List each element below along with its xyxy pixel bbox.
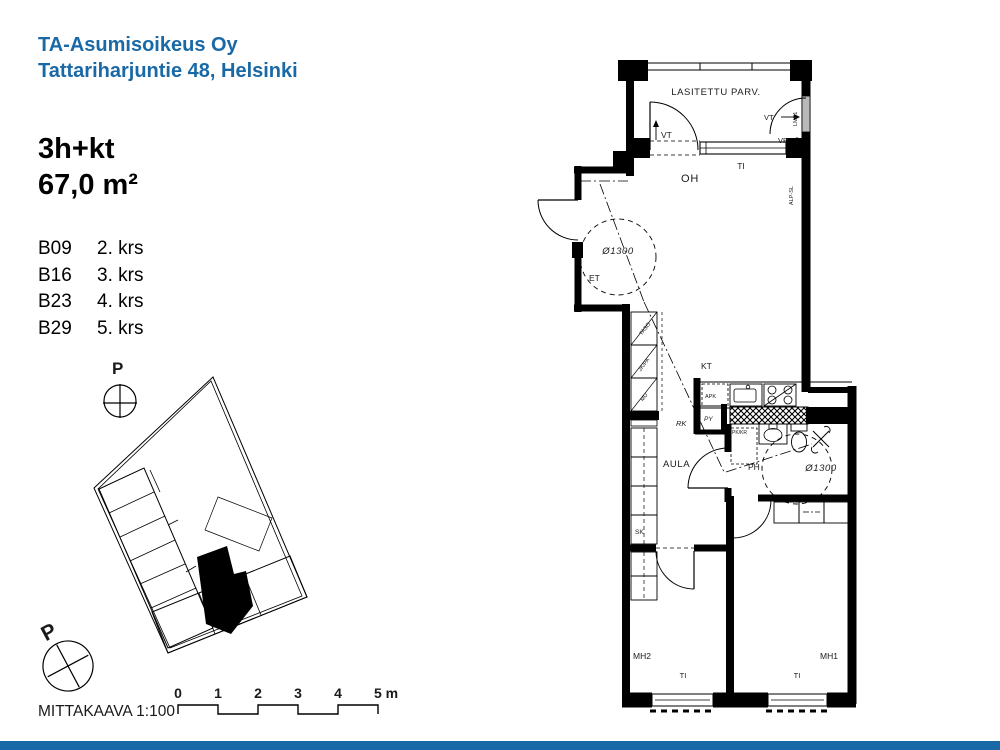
living-balcony-door: VT (650, 102, 700, 155)
dim-circle-entry: Ø1300 (601, 246, 634, 257)
site-highlighted-unit (197, 546, 253, 634)
bathroom-door (688, 448, 728, 488)
kitchen-sink (730, 384, 762, 406)
room-label-bedroom1: MH1 (820, 651, 838, 661)
washer-dryer-reservation: PK/KR (731, 428, 757, 464)
walls (572, 62, 856, 704)
scale-tick: 2 (254, 685, 262, 701)
entry-door (538, 200, 578, 240)
turning-circle-entry (580, 219, 656, 295)
cabinet-label-mu: MU (640, 392, 650, 402)
bedroom2-door (656, 548, 694, 589)
scale-tick: 5 m (374, 685, 398, 701)
dishwasher-label: APK (705, 394, 716, 400)
north-label: P (37, 619, 60, 646)
window-label-ti: TI (680, 671, 687, 680)
scale-bar: MITTAKAAVA 1:100 0 1 2 3 4 5 m (38, 685, 398, 720)
stove (764, 384, 796, 406)
dishwasher: APK (702, 384, 728, 406)
duct-label-upper: LMP1 (793, 112, 799, 126)
floor-plan: LASITETTU PARV. VT VP LMP1 ALP-SL (538, 60, 856, 711)
label-rk: RK (676, 419, 687, 428)
room-label-hall: AULA (663, 459, 690, 470)
north-compass-bottom: P (22, 610, 101, 700)
closet-label-sk: SK (635, 529, 644, 536)
drawing-layer: P P MITTAKAAVA 1:100 0 1 2 3 4 5 m (0, 0, 1000, 750)
living-window: TI (700, 142, 786, 171)
room-label-balcony: LASITETTU PARV. (671, 87, 761, 98)
cabinet-label-jkpa: JK/PA (637, 357, 651, 373)
bedroom1-window: TI (766, 671, 829, 711)
hatched-wall (730, 407, 808, 424)
washer-dryer-label: PK/KR (732, 430, 747, 436)
bedroom1-wardrobes (774, 502, 849, 523)
window-label-ti: TI (737, 161, 745, 171)
scale-tick: 3 (294, 685, 302, 701)
py-label: PY (704, 416, 713, 423)
door-label-vt: VT (764, 113, 774, 122)
scale-tick: 1 (214, 685, 222, 701)
kitchen-tall-cabinets: TASO JK/PA MU (629, 312, 662, 426)
door-label-vt: VT (661, 130, 672, 140)
room-label-living: OH (681, 173, 699, 185)
floorplan-sheet: TA-Asumisoikeus Oy Tattariharjuntie 48, … (0, 0, 1000, 750)
scale-tick: 4 (334, 685, 342, 701)
site-plan (94, 377, 307, 653)
shower-icon (811, 426, 830, 453)
washbasin (759, 424, 787, 444)
bedroom2-closets (631, 552, 657, 600)
footer-accent-bar (0, 741, 1000, 750)
dim-circle-bath: Ø1300 (804, 463, 837, 474)
cabinet-label-taso: TASO (639, 321, 653, 337)
room-label-kitchen: KT (701, 361, 712, 371)
room-label-bath: PH (748, 462, 760, 472)
bedroom2-window: TI (650, 671, 715, 711)
room-label-entry: ET (589, 273, 600, 283)
scale-tick: 0 (174, 685, 182, 701)
toilet (791, 424, 807, 452)
room-label-bedroom2: MH2 (633, 651, 651, 661)
window-label-ti: TI (794, 671, 801, 680)
scale-label: MITTAKAAVA 1:100 (38, 703, 175, 720)
balcony-glazing (618, 60, 812, 81)
hall-closets: SK (631, 428, 657, 544)
north-compass-top: P (103, 359, 137, 418)
balcony-exit-door: VT (764, 96, 810, 134)
bedroom1-door (733, 500, 771, 538)
duct-label-lower: ALP-SL (789, 186, 795, 205)
north-label: P (112, 359, 123, 378)
